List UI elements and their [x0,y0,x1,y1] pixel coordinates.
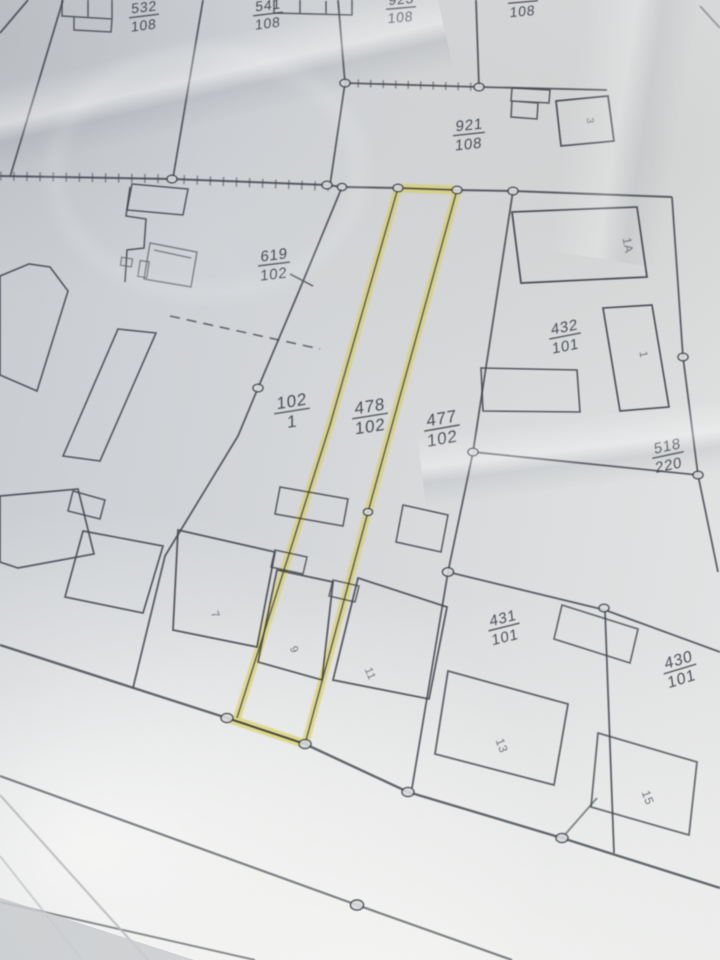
building-hatched-15 [591,733,697,835]
building-number-3: 3 [584,117,595,124]
svg-text:7: 7 [208,610,222,621]
svg-text:1: 1 [287,411,297,432]
parcel-label-102-1: 102 1 [274,389,310,434]
building-numbers: 3 1A 1 7 9 11 13 15 [208,117,657,806]
fence-ticks [0,83,479,187]
outbuilding-striped [554,605,638,663]
svg-text:108: 108 [387,8,413,26]
building-number-9: 9 [287,645,301,656]
survey-points [167,79,703,910]
building-outline [274,0,352,15]
svg-text:102: 102 [427,426,458,450]
svg-text:108: 108 [255,14,281,33]
parcel-label-431-101: 431 101 [487,606,522,650]
building-number-11: 11 [362,666,378,682]
building-number-1: 1 [637,350,650,358]
svg-text:108: 108 [455,135,483,155]
parcel-label-619-102: 619 102 [258,245,290,285]
svg-text:432: 432 [551,316,579,338]
building-outline [62,0,112,32]
paper-edges [0,795,148,960]
svg-text:102: 102 [260,264,288,284]
parcel-label-430-101: 430 101 [661,646,699,693]
outbuilding-striped [127,184,188,215]
building-number-13: 13 [493,736,511,754]
parcel-label-921-108: 921 108 [452,115,485,155]
building-hatched [65,531,163,613]
cadastral-map-photo: 532 108 541 108 923 108 108 921 [0,0,720,960]
parcel-label-923-108: 923 108 [385,0,417,26]
building-number-7: 7 [208,610,222,621]
building-outline [511,88,550,119]
outbuilding-ladder [63,329,156,461]
parcel-label-541-108: 541 108 [253,0,283,33]
building-hatched-1 [603,305,669,411]
outbuilding-striped [0,264,68,391]
building-number-15: 15 [639,788,657,806]
building-hatched [0,489,94,568]
svg-text:9: 9 [287,645,301,656]
svg-text:102: 102 [355,415,386,439]
outbuilding-striped [481,368,580,412]
svg-text:3: 3 [584,117,595,124]
svg-text:1: 1 [637,350,650,358]
outbuilding-striped [396,505,448,552]
dashed-boundary [170,316,320,349]
parcel-label-478-102: 478 102 [352,394,388,439]
map-drawing: 532 108 541 108 923 108 108 921 [0,0,720,960]
parcel-number: 532 [131,0,157,17]
parcel-label-532-108: 532 108 [129,0,159,35]
building-hatched-7 [173,530,275,647]
parcel-label-unknown-108: 108 [507,1,538,21]
building-hatched-13 [435,671,568,785]
parcel-label-477-102: 477 102 [424,406,461,452]
svg-text:1A: 1A [620,236,637,254]
parcel-label-432-101: 432 101 [548,316,581,358]
svg-text:13: 13 [493,736,511,754]
svg-text:101: 101 [552,335,580,357]
svg-text:11: 11 [362,666,378,682]
buildings [0,0,697,835]
svg-text:108: 108 [509,2,535,20]
svg-text:15: 15 [639,788,657,806]
building-number-1a: 1A [620,236,637,254]
parcel-label-518-220: 518 220 [651,435,685,478]
building-outline [68,491,105,519]
parcel-number: 108 [131,16,157,35]
